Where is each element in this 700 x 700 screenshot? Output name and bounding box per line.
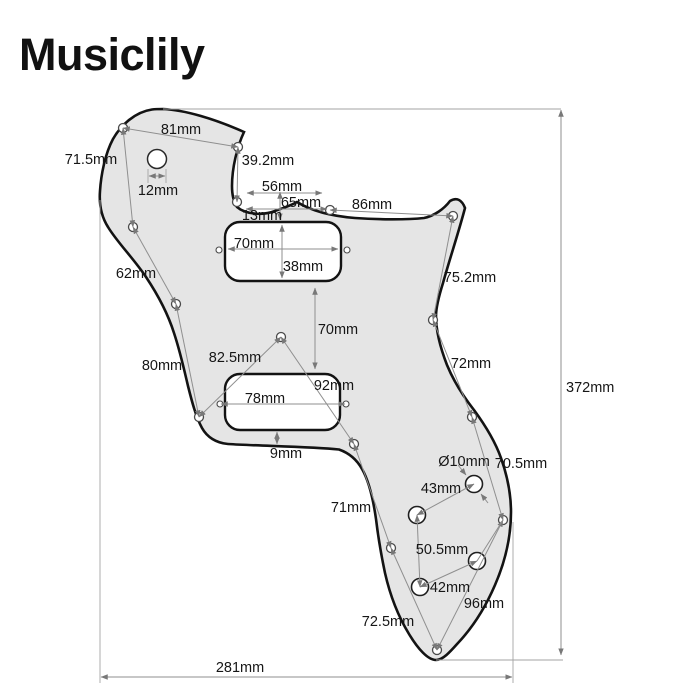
dim-label-96mm: 96mm xyxy=(464,596,504,612)
pickup-screw-hole xyxy=(344,247,350,253)
dim-label-80mm: 80mm xyxy=(142,358,182,374)
dim-label-56mm: 56mm xyxy=(262,179,302,195)
dim-label-70mm-neck: 70mm xyxy=(234,236,274,252)
dim-label-75-2mm: 75.2mm xyxy=(444,270,496,286)
dim-label-38mm: 38mm xyxy=(283,259,323,275)
dim-label-92mm: 92mm xyxy=(314,378,354,394)
dim-label-81mm: 81mm xyxy=(161,122,201,138)
dim-label-39-2mm: 39.2mm xyxy=(242,153,294,169)
dim-label-dia-10mm: Ø10mm xyxy=(438,454,490,470)
dim-label-71mm: 71mm xyxy=(331,500,371,516)
round-hole-12mm xyxy=(148,150,167,169)
dim-label-281mm: 281mm xyxy=(216,660,264,676)
dim-label-65mm: 65mm xyxy=(281,195,321,211)
dim-label-372mm: 372mm xyxy=(566,380,614,396)
dim-label-86mm: 86mm xyxy=(352,197,392,213)
dim-label-72mm: 72mm xyxy=(451,356,491,372)
dim-label-71-5mm: 71.5mm xyxy=(65,152,117,168)
dim-label-70-5mm: 70.5mm xyxy=(495,456,547,472)
dim-label-43mm: 43mm xyxy=(421,481,461,497)
pickup-screw-hole xyxy=(216,247,222,253)
dim-label-9mm: 9mm xyxy=(270,446,302,462)
dim-label-62mm: 62mm xyxy=(116,266,156,282)
dim-label-12mm: 12mm xyxy=(138,183,178,199)
dim-label-50-5mm: 50.5mm xyxy=(416,542,468,558)
dim-label-70mm-gap: 70mm xyxy=(318,322,358,338)
dim-label-78mm: 78mm xyxy=(245,391,285,407)
dim-label-42mm: 42mm xyxy=(430,580,470,596)
dim-label-13mm: 13mm xyxy=(242,208,282,224)
brand-logo: Musiclily xyxy=(19,29,205,80)
dim-label-72-5mm: 72.5mm xyxy=(362,614,414,630)
pickguard-dimension-diagram: Musiclily xyxy=(0,0,700,700)
dim-label-82-5mm: 82.5mm xyxy=(209,350,261,366)
